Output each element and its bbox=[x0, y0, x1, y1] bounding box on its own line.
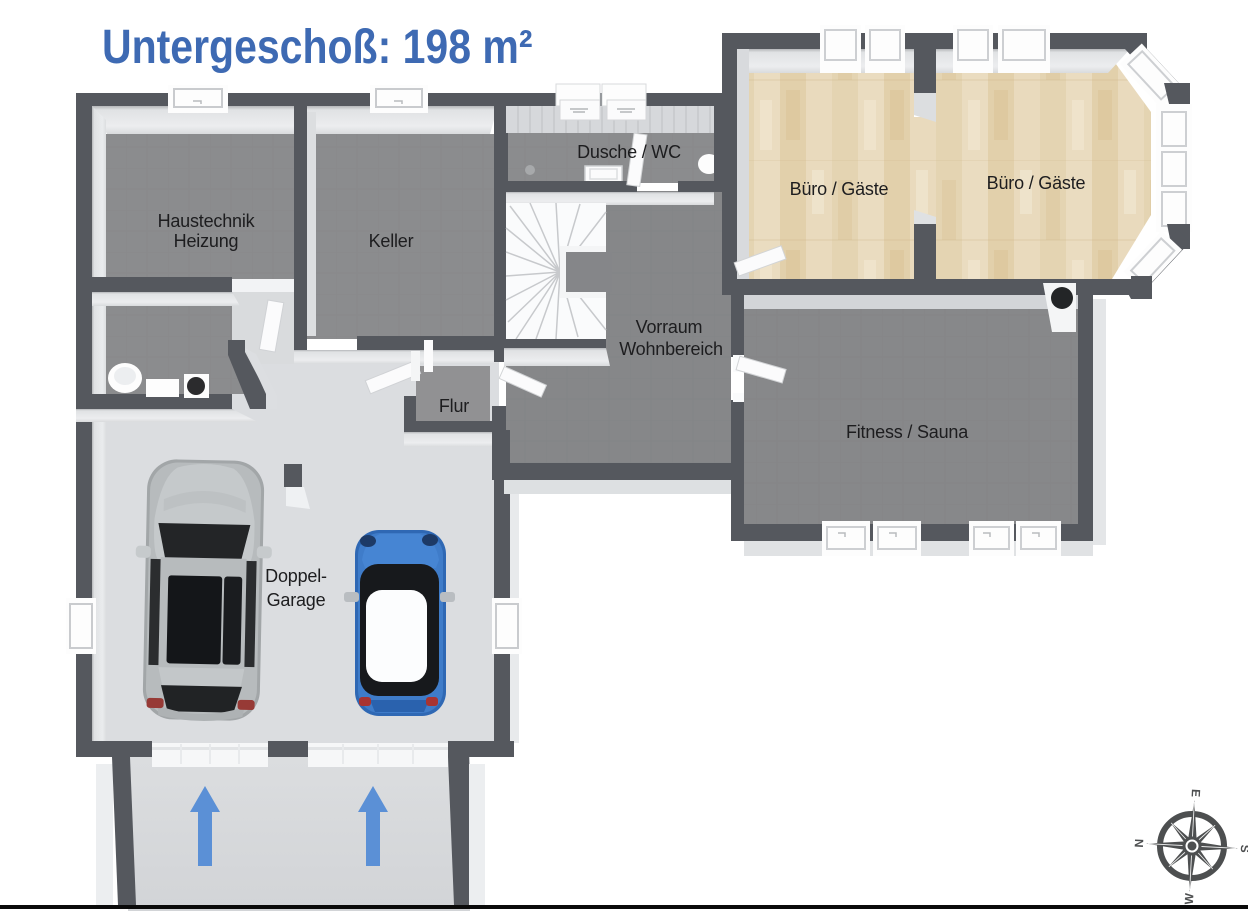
svg-text:Wohnbereich: Wohnbereich bbox=[619, 339, 723, 359]
svg-text:Garage: Garage bbox=[267, 590, 326, 610]
svg-text:N: N bbox=[1132, 839, 1146, 848]
svg-text:Büro / Gäste: Büro / Gäste bbox=[790, 179, 889, 199]
svg-text:Flur: Flur bbox=[439, 396, 469, 416]
svg-text:Heizung: Heizung bbox=[174, 231, 239, 251]
svg-text:W: W bbox=[1182, 892, 1197, 905]
svg-text:Fitness / Sauna: Fitness / Sauna bbox=[846, 422, 969, 442]
svg-text:Haustechnik: Haustechnik bbox=[158, 211, 256, 231]
svg-text:S: S bbox=[1238, 844, 1248, 853]
svg-text:Keller: Keller bbox=[369, 231, 414, 251]
svg-text:Vorraum: Vorraum bbox=[636, 317, 703, 337]
svg-text:Dusche / WC: Dusche / WC bbox=[577, 142, 681, 162]
svg-text:Büro / Gäste: Büro / Gäste bbox=[987, 173, 1086, 193]
svg-text:Untergeschoß: 198 m²: Untergeschoß: 198 m² bbox=[102, 21, 532, 74]
svg-text:Doppel-: Doppel- bbox=[265, 566, 327, 586]
svg-text:E: E bbox=[1189, 789, 1203, 798]
